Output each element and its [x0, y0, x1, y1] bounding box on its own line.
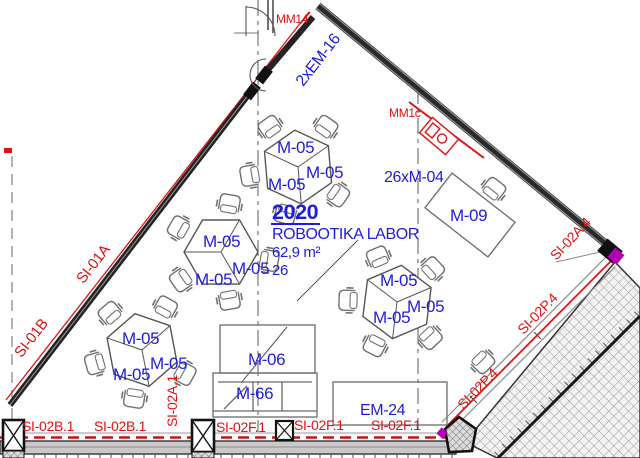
m05-label: M-05	[195, 270, 232, 289]
wall-bottom	[0, 433, 456, 458]
si02f1-label: SI-02F.1	[371, 417, 421, 433]
m05-label: M-05	[373, 308, 410, 327]
em16-label: 2xEM-16	[293, 30, 344, 89]
m04-count-label: 26xM-04	[384, 169, 444, 186]
dimension-ticks	[14, 454, 456, 458]
m05-label: M-05	[150, 354, 187, 373]
si02f1-label: SI-02F.1	[216, 419, 266, 435]
table-cluster-bottom-left	[79, 288, 203, 413]
room-number: 2020	[272, 200, 319, 224]
column-x-small	[276, 421, 293, 440]
m05-label: M-05	[122, 329, 159, 348]
mm1c-label: MM1c	[389, 106, 421, 120]
table-cluster-bottom-right	[320, 226, 472, 378]
column-x-mid	[192, 420, 214, 458]
si02p4-label: SI-02P.4	[514, 290, 561, 338]
si02b1-label: SI-02B.1	[22, 418, 75, 434]
m05-label: M-05	[306, 163, 343, 182]
m05-label: M-05	[277, 138, 314, 157]
m05-label: M-05	[407, 297, 444, 316]
m05-label: M-05	[232, 259, 269, 278]
si02b1-label: SI-02B.1	[94, 418, 147, 434]
mm1c-device	[420, 117, 459, 154]
door-top	[234, 0, 275, 91]
m09-label: M-09	[450, 206, 487, 225]
m06-label: M-06	[248, 350, 285, 369]
m05-label: M-05	[113, 365, 150, 384]
floor-plan: 2020 ROBOOTIKA LABOR 62,9 m² 26 26xM-04 …	[0, 0, 640, 458]
m66-label: M-66	[236, 384, 273, 403]
door-swing-arc-large	[246, 7, 275, 36]
si02f1-label: SI-02F.1	[294, 417, 344, 433]
m05-label: M-05	[203, 232, 240, 251]
mm14-label: MM14	[276, 12, 309, 26]
si02a1-label: SI-02A.1	[164, 374, 180, 427]
room-area: 62,9 m²	[272, 244, 320, 261]
room-capacity: 26	[272, 262, 288, 279]
left-axis-marker	[4, 148, 12, 153]
m05-label: M-05	[380, 271, 417, 290]
si02a4-label: SI-02A.4	[547, 214, 595, 263]
room-name: ROBOOTIKA LABOR	[272, 226, 419, 243]
m05-label: M-05	[268, 175, 305, 194]
floor-plan-drawing: 2020 ROBOOTIKA LABOR 62,9 m² 26 26xM-04 …	[0, 0, 640, 458]
column-x-left	[3, 420, 24, 458]
